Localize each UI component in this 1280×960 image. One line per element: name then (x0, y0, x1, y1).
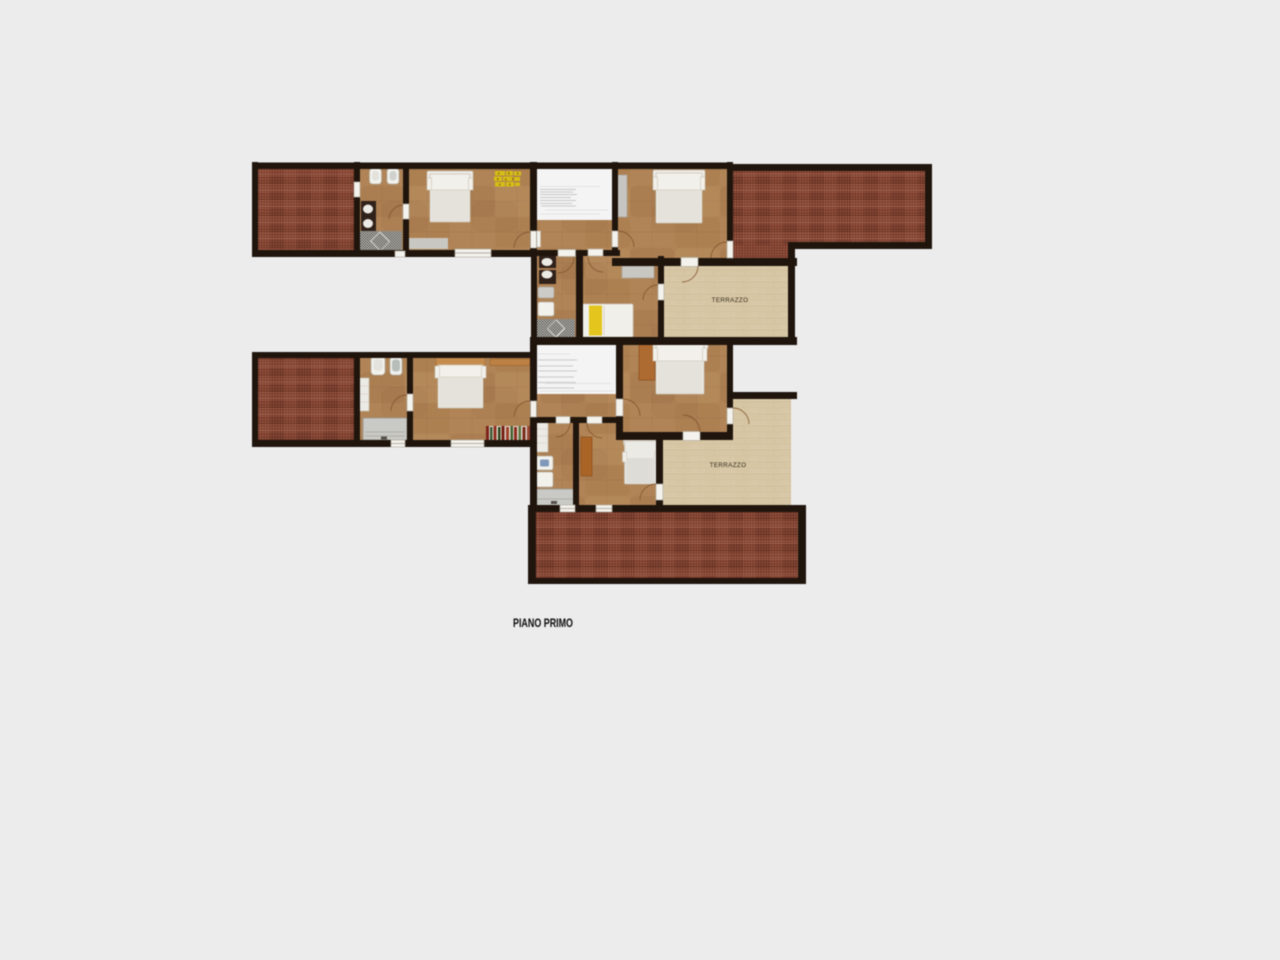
svg-text:PIANO PRIMO: PIANO PRIMO (513, 616, 573, 630)
svg-text:TERRAZZO: TERRAZZO (712, 297, 749, 304)
svg-text:TERRAZZO: TERRAZZO (710, 462, 747, 469)
